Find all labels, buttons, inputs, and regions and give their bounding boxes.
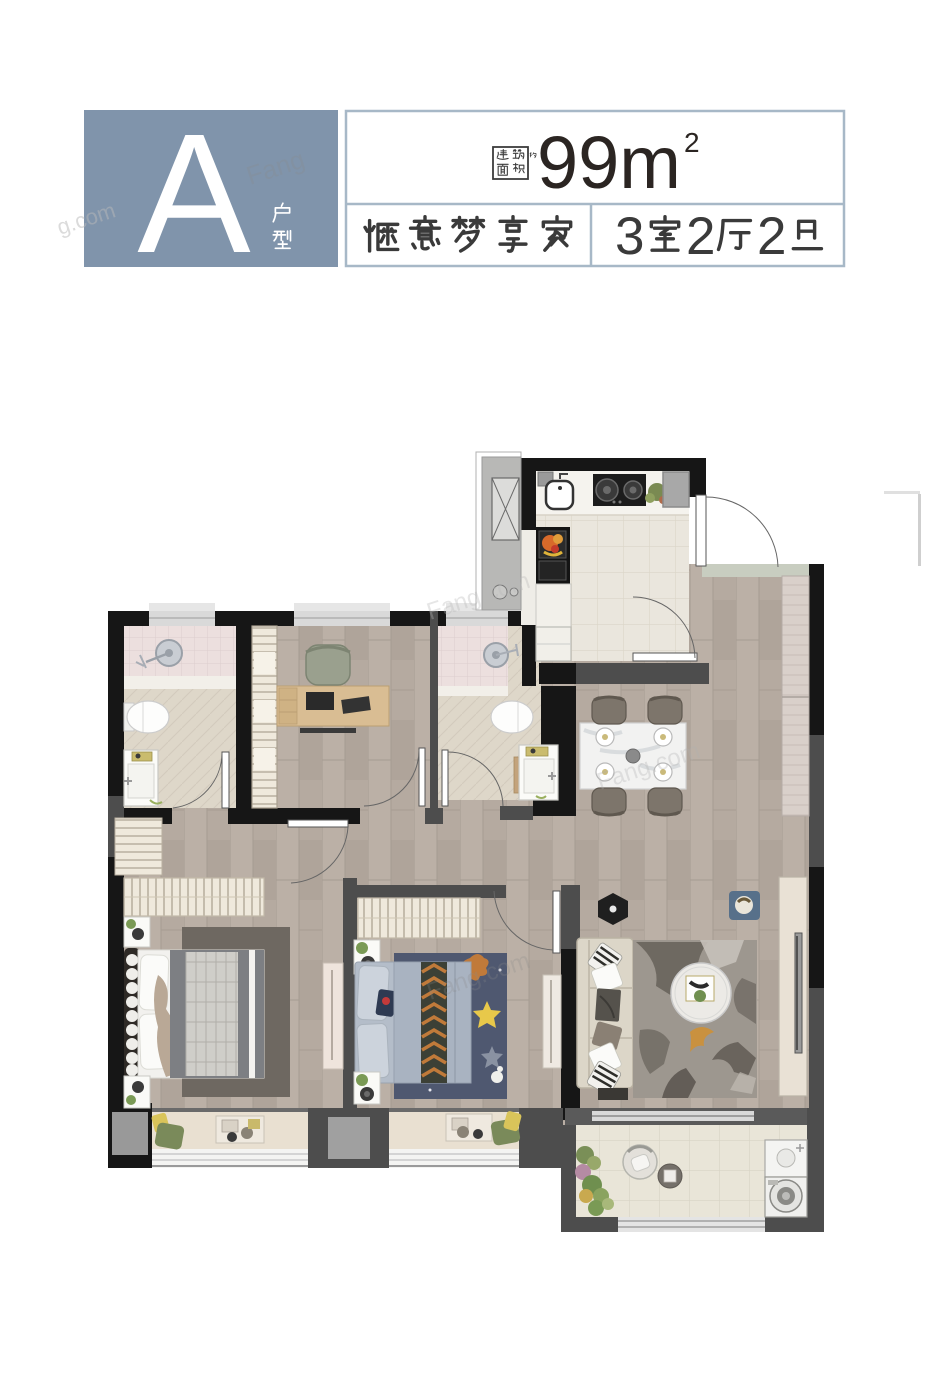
svg-text:A: A xyxy=(137,99,251,289)
svg-text:2: 2 xyxy=(757,207,786,266)
svg-text:2: 2 xyxy=(686,207,715,266)
svg-text:2: 2 xyxy=(684,127,700,158)
svg-text:3: 3 xyxy=(615,207,644,266)
svg-text:99m: 99m xyxy=(537,121,681,204)
